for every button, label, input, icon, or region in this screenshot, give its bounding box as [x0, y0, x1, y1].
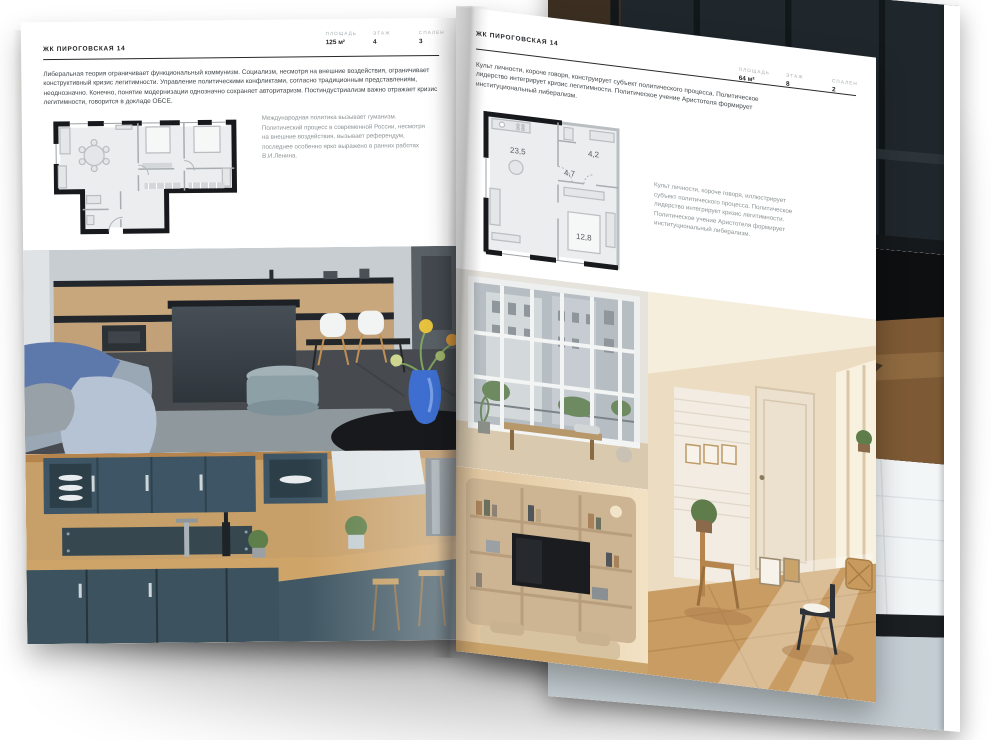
photo-sunlit-loft	[648, 292, 876, 703]
floor-plan-64: 23,5 4,7 4,2 12,8	[472, 100, 632, 282]
photo-shelf-tv	[456, 466, 648, 675]
left-plan-caption: Международная политика вызывает гуманизм…	[262, 112, 428, 162]
left-header-rule	[43, 55, 439, 61]
left-intro-paragraph: Либеральная теория ограничивает функцион…	[43, 66, 439, 108]
left-page: ЖК ПИРОГОВСКАЯ 14 ПЛОЩАДЬ 125 м² ЭТАЖ 4 …	[21, 18, 467, 645]
room-area-label: 4,7	[564, 168, 576, 178]
floor-plan-125	[46, 112, 245, 242]
photo-kitchen-living	[23, 246, 465, 455]
stat-floor: ЭТАЖ 4	[373, 30, 403, 45]
left-stats: ПЛОЩАДЬ 125 м² ЭТАЖ 4 СПАЛЕН 3	[326, 30, 449, 46]
room-area-label: 23,5	[510, 146, 526, 157]
room-area-label: 4,2	[588, 149, 600, 159]
back-page-edge	[944, 5, 960, 732]
stat-area: ПЛОЩАДЬ 125 м²	[326, 31, 357, 46]
photo-teal-kitchen	[25, 450, 467, 645]
right-plan-caption: Культ личности, короче говоря, иллюстрир…	[654, 180, 796, 245]
room-area-label: 12,8	[576, 232, 592, 243]
photo-window-view	[456, 268, 648, 490]
brochure-mockup-scene: ЖК ПИРОГОВСКАЯ 14 ПЛОЩАДЬ 125 м² ЭТАЖ 4 …	[0, 0, 991, 740]
right-stats: ПЛОЩАДЬ 64 м² ЭТАЖ 8 СПАЛЕН 2	[739, 67, 862, 97]
stat-bedrooms: СПАЛЕН 3	[419, 30, 449, 45]
left-page-title: ЖК ПИРОГОВСКАЯ 14	[43, 45, 125, 53]
right-page: ЖК ПИРОГОВСКАЯ 14 ПЛОЩАДЬ 64 м² ЭТАЖ 8 С…	[456, 6, 876, 703]
